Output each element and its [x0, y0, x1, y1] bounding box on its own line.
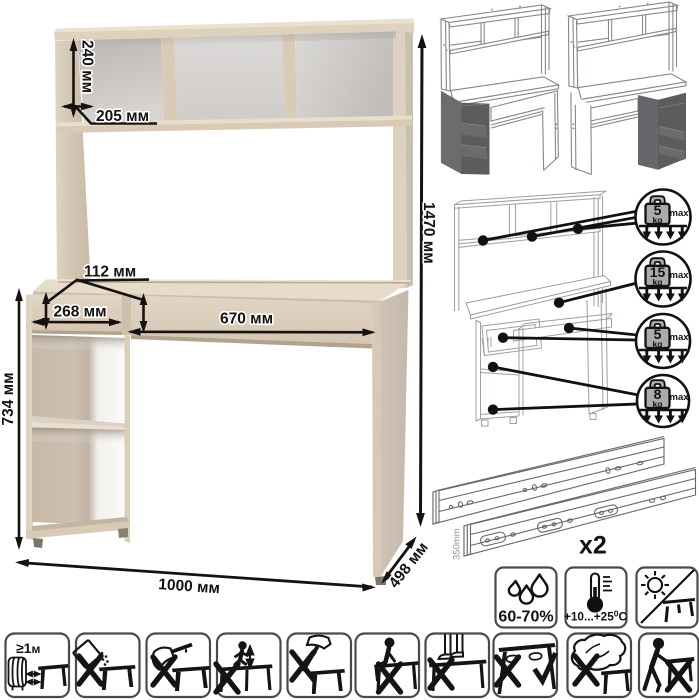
svg-text:15: 15: [650, 264, 666, 280]
svg-text:x2: x2: [579, 532, 607, 560]
svg-text:112 мм: 112 мм: [84, 264, 136, 281]
svg-text:734 мм: 734 мм: [0, 372, 17, 425]
svg-text:60-70%: 60-70%: [498, 609, 553, 626]
svg-text:8: 8: [654, 386, 662, 402]
svg-text:670 мм: 670 мм: [220, 311, 273, 328]
svg-text:5: 5: [654, 326, 662, 342]
svg-text:≥1м: ≥1м: [16, 640, 40, 656]
svg-text:350mm: 350mm: [452, 528, 463, 560]
svg-text:268 мм: 268 мм: [54, 304, 107, 321]
svg-text:1000 мм: 1000 мм: [158, 576, 221, 597]
svg-text:+10...+250C: +10...+250C: [564, 609, 628, 624]
svg-text:5: 5: [654, 202, 662, 218]
svg-text:205 мм: 205 мм: [96, 108, 149, 125]
svg-text:240 мм: 240 мм: [79, 40, 96, 93]
